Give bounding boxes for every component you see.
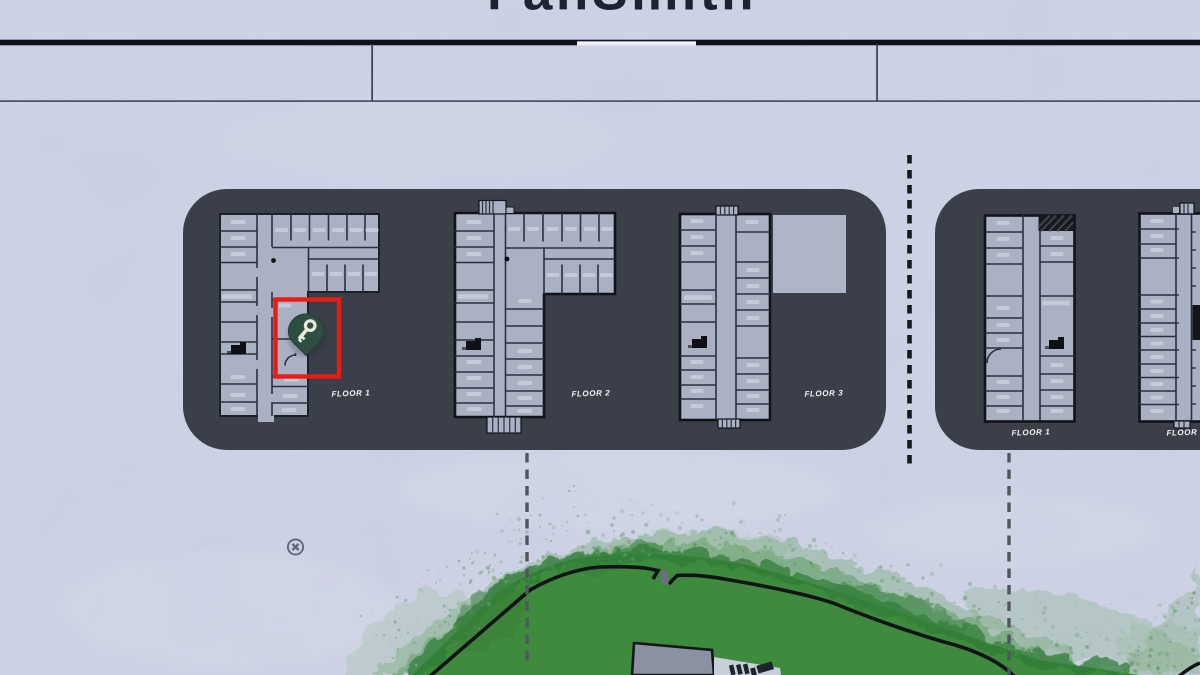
svg-text:FLOOR 1: FLOOR 1 xyxy=(331,388,370,398)
svg-text:FLOOR 1: FLOOR 1 xyxy=(1011,427,1050,437)
svg-text:FLOOR 2: FLOOR 2 xyxy=(571,388,610,398)
svg-text:FLOOR 3: FLOOR 3 xyxy=(804,388,843,398)
svg-text:FLOOR 2: FLOOR 2 xyxy=(1166,427,1200,437)
svg-text:FallSmith: FallSmith xyxy=(487,0,757,22)
